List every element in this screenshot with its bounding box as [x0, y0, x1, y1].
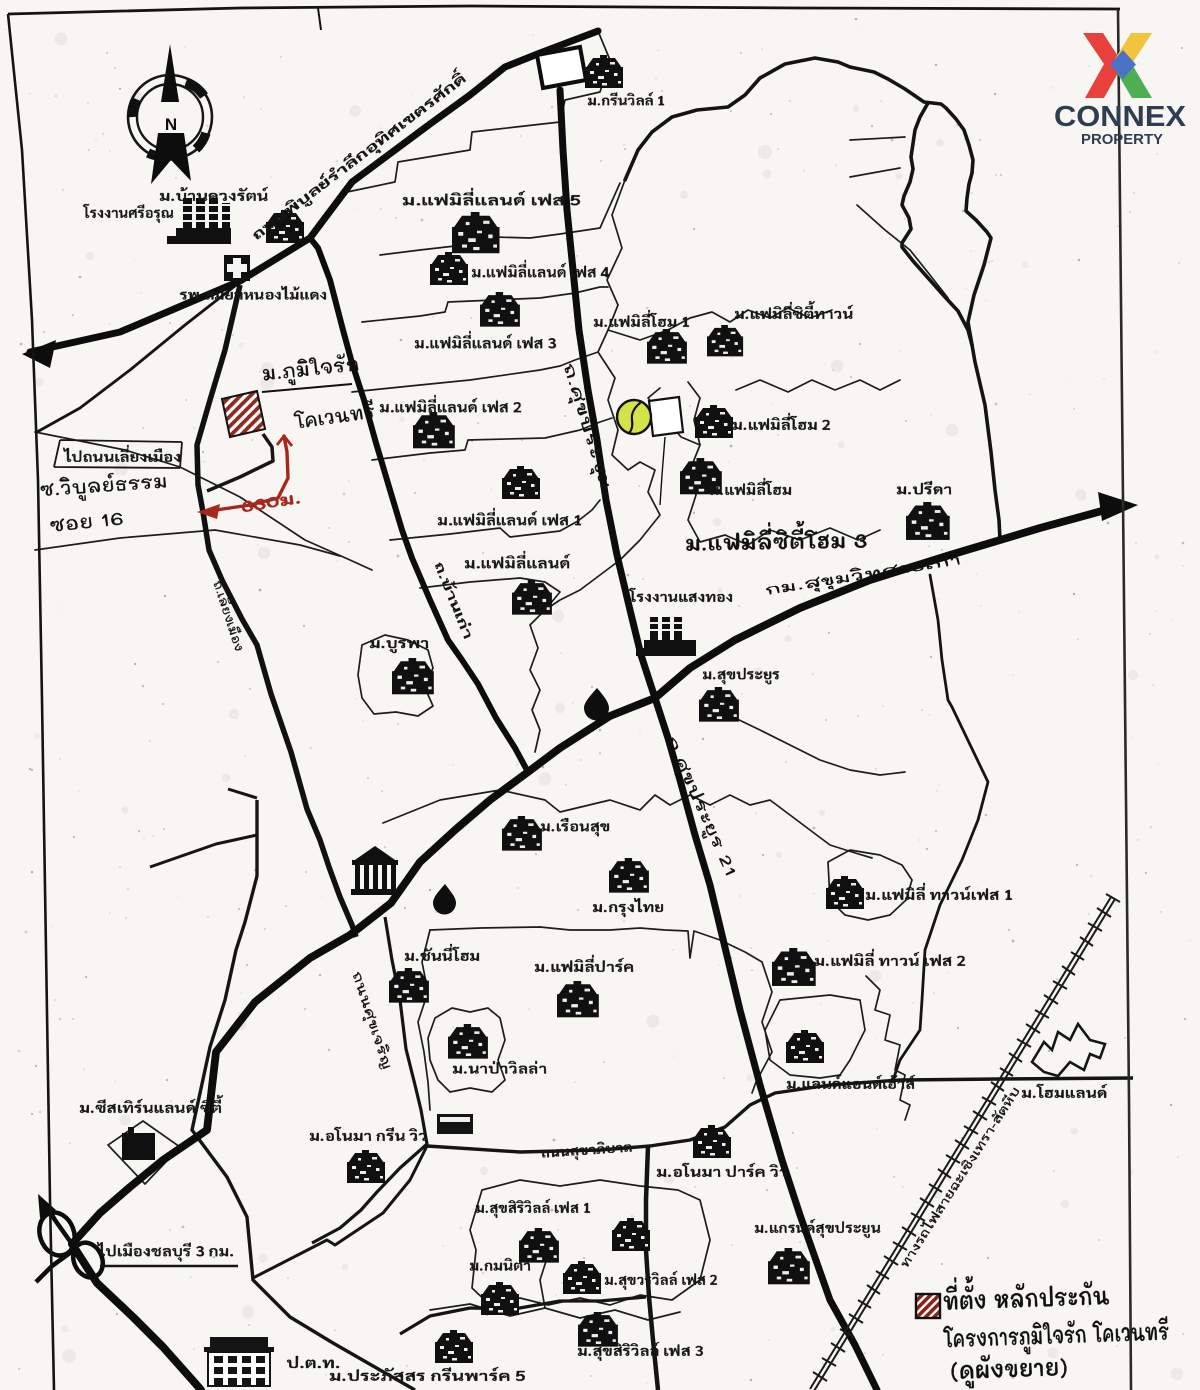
svg-text:N: N: [165, 115, 177, 134]
svg-text:CONNEX: CONNEX: [1054, 101, 1187, 133]
svg-text:PROPERTY: PROPERTY: [1081, 132, 1163, 148]
